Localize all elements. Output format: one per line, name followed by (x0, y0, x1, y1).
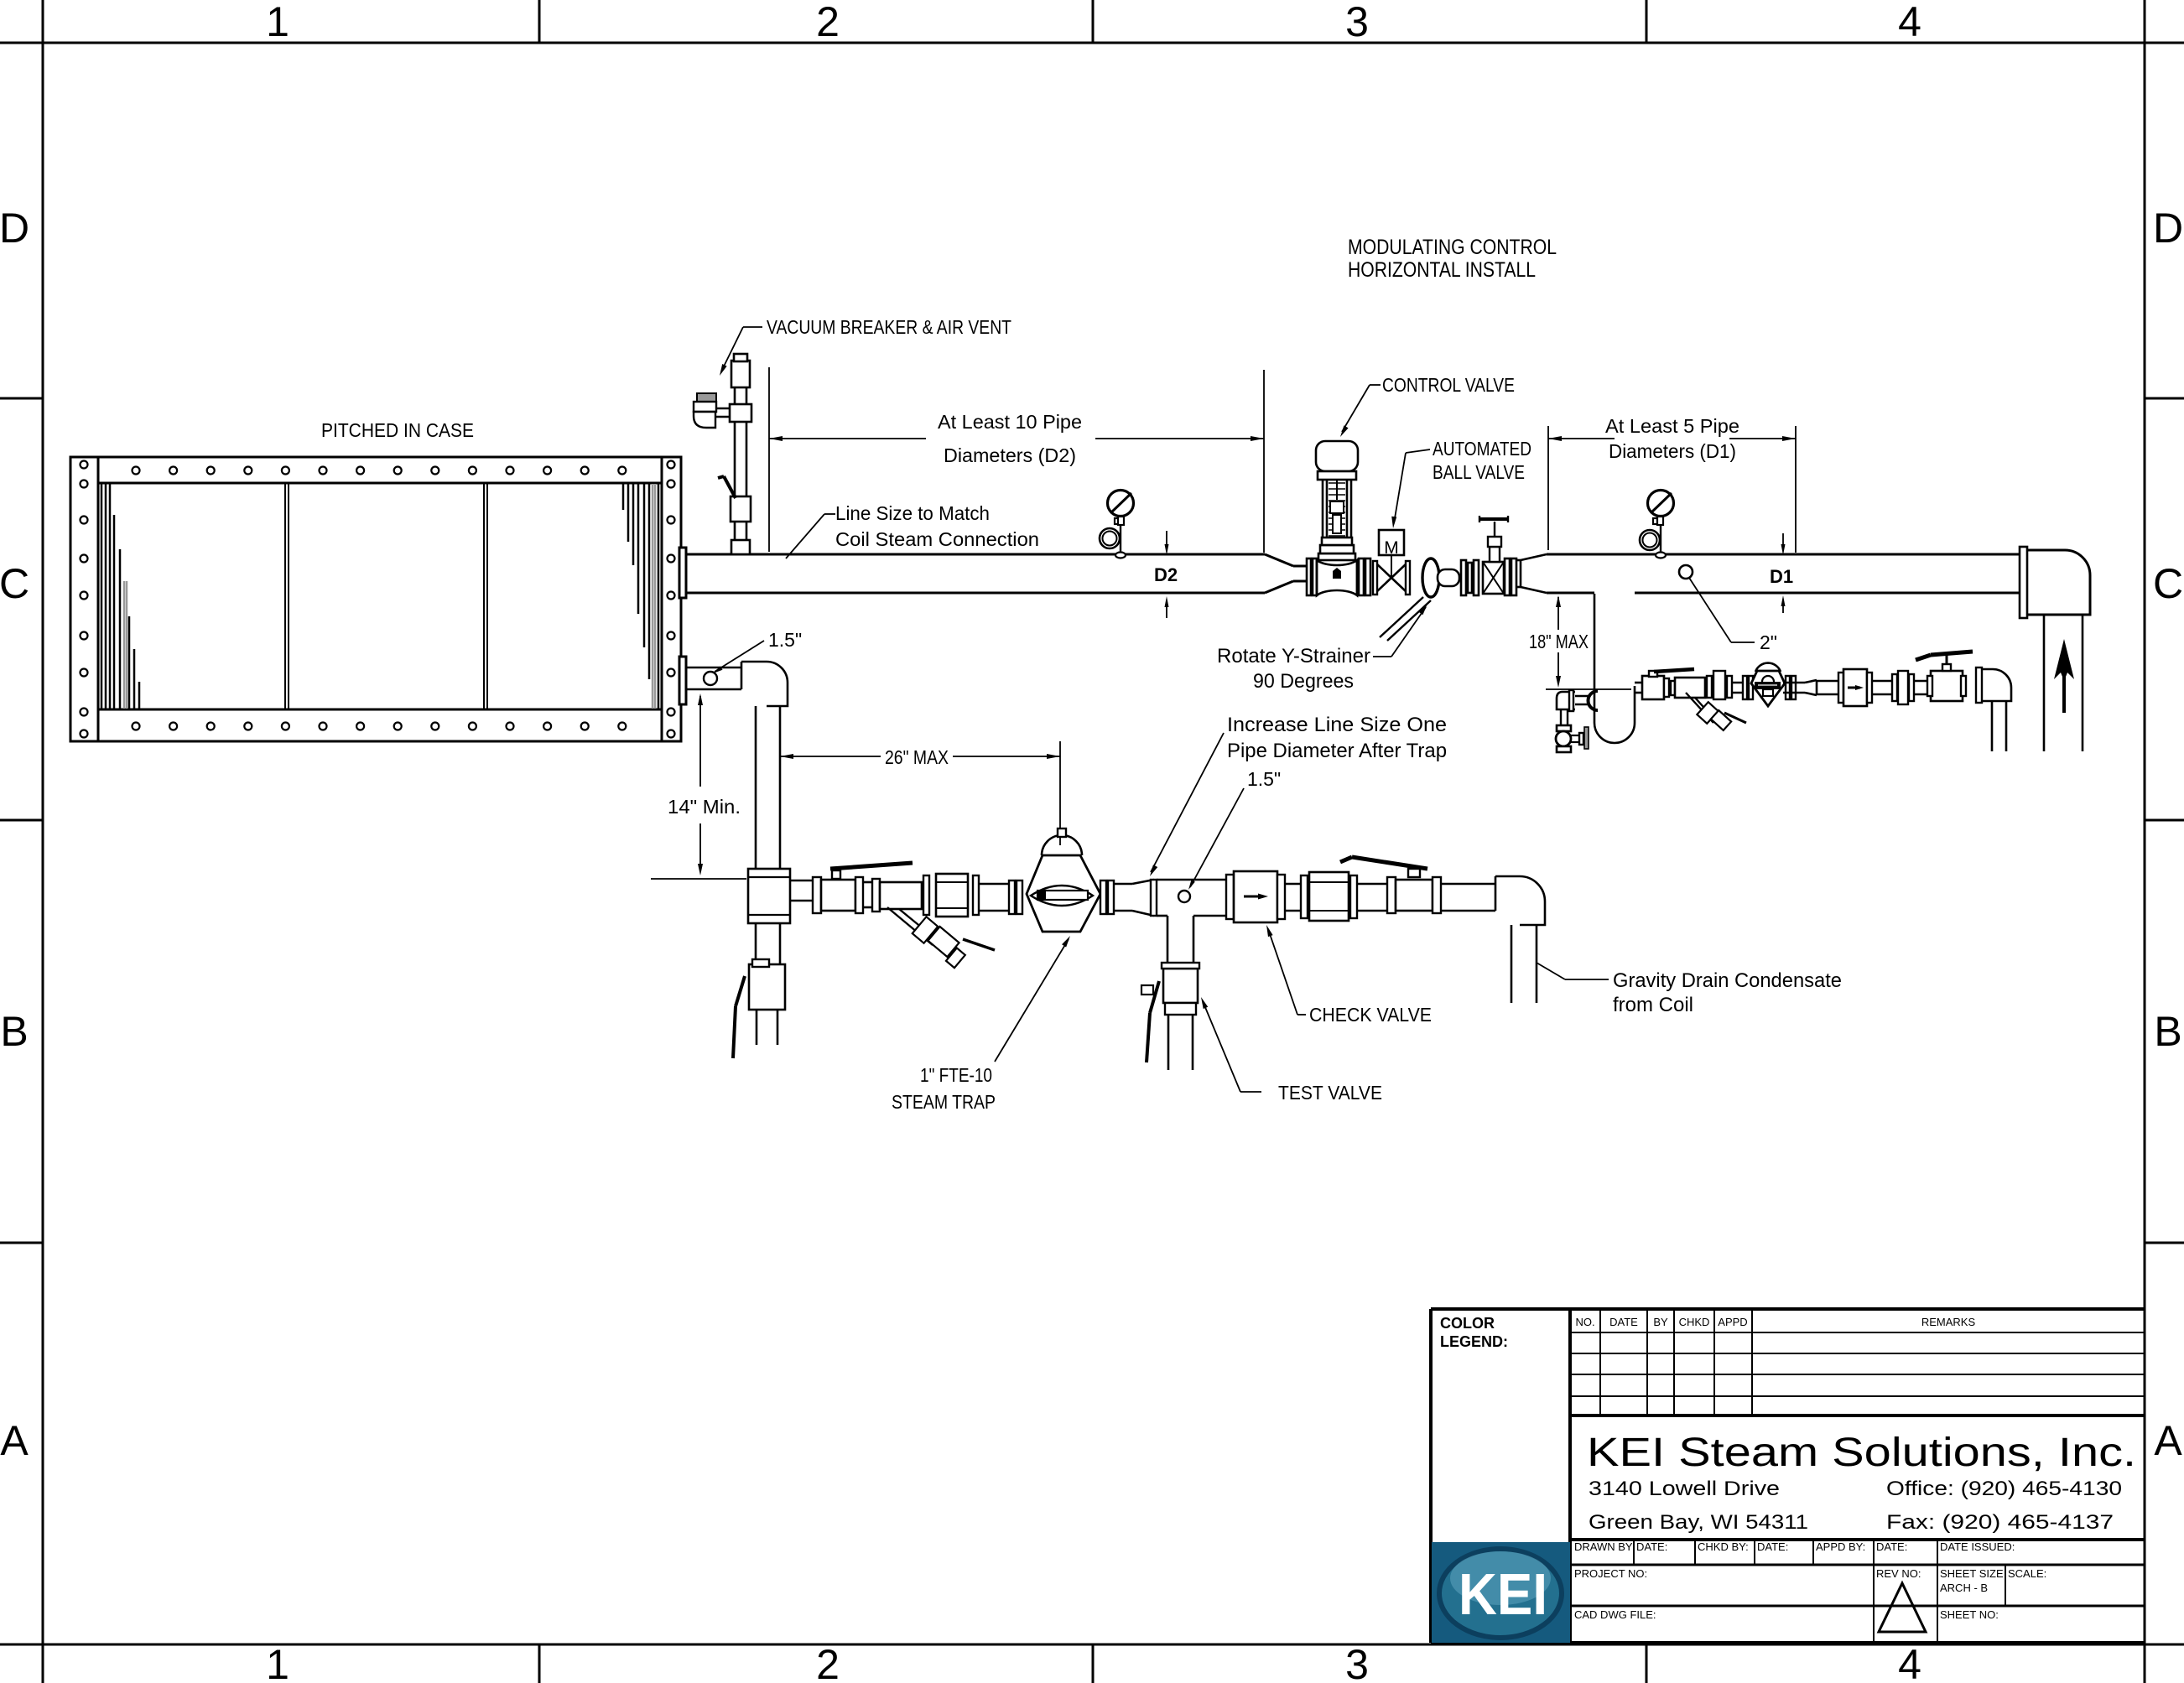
svg-text:18" MAX: 18" MAX (1529, 631, 1589, 652)
svg-text:KEI Steam Solutions, Inc.: KEI Steam Solutions, Inc. (1587, 1431, 2136, 1475)
svg-text:D1: D1 (1770, 566, 1793, 587)
svg-text:Green Bay, WI 54311: Green Bay, WI 54311 (1589, 1511, 1808, 1534)
svg-text:1: 1 (266, 1641, 289, 1683)
svg-text:90 Degrees: 90 Degrees (1253, 670, 1354, 693)
svg-text:PROJECT NO:: PROJECT NO: (1574, 1567, 1647, 1580)
svg-text:Coil Steam Connection: Coil Steam Connection (835, 528, 1039, 550)
svg-text:3: 3 (1345, 1641, 1369, 1683)
svg-text:Line Size to Match: Line Size to Match (835, 502, 990, 524)
svg-text:DATE ISSUED:: DATE ISSUED: (1940, 1540, 2015, 1553)
svg-text:ARCH - B: ARCH - B (1940, 1582, 1988, 1594)
svg-text:2": 2" (1760, 631, 1777, 653)
svg-text:REMARKS: REMARKS (1921, 1316, 1976, 1328)
svg-text:1" FTE-10: 1" FTE-10 (920, 1064, 992, 1086)
svg-text:A: A (0, 1417, 29, 1464)
svg-text:NO.: NO. (1575, 1316, 1594, 1328)
svg-text:DATE:: DATE: (1876, 1540, 1907, 1553)
svg-text:Gravity Drain Condensate: Gravity Drain Condensate (1613, 969, 1842, 992)
svg-text:26" MAX: 26" MAX (885, 746, 949, 768)
svg-text:C: C (2153, 560, 2183, 607)
svg-text:COLOR: COLOR (1440, 1315, 1495, 1332)
svg-text:14" Min.: 14" Min. (668, 796, 741, 818)
svg-text:DATE: DATE (1609, 1316, 1638, 1328)
svg-text:At Least 5 Pipe: At Least 5 Pipe (1605, 415, 1739, 437)
svg-text:APPD BY:: APPD BY: (1816, 1540, 1865, 1553)
svg-text:D2: D2 (1154, 564, 1178, 585)
svg-text:APPD: APPD (1718, 1316, 1747, 1328)
svg-text:D: D (0, 205, 29, 252)
svg-text:M: M (1384, 538, 1399, 558)
svg-text:Diameters (D2): Diameters (D2) (944, 444, 1076, 466)
svg-text:SCALE:: SCALE: (2008, 1567, 2046, 1580)
svg-text:C: C (0, 560, 29, 607)
svg-text:CHKD: CHKD (1679, 1316, 1710, 1328)
svg-text:Pipe Diameter After Trap: Pipe Diameter After Trap (1227, 740, 1447, 762)
svg-text:4: 4 (1898, 0, 1921, 45)
svg-text:B: B (0, 1008, 28, 1055)
svg-text:B: B (2154, 1008, 2181, 1055)
svg-text:REV NO:: REV NO: (1876, 1567, 1921, 1580)
svg-text:3: 3 (1345, 0, 1369, 45)
svg-text:BALL VALVE: BALL VALVE (1433, 461, 1525, 483)
svg-text:CHKD BY:: CHKD BY: (1698, 1540, 1749, 1553)
svg-text:MODULATING CONTROL: MODULATING CONTROL (1348, 236, 1557, 259)
svg-text:2: 2 (816, 1641, 840, 1683)
svg-text:Rotate Y-Strainer: Rotate Y-Strainer (1217, 645, 1370, 667)
svg-text:VACUUM BREAKER & AIR VENT: VACUUM BREAKER & AIR VENT (767, 316, 1011, 338)
svg-text:PITCHED IN CASE: PITCHED IN CASE (321, 419, 474, 441)
svg-text:KEI: KEI (1459, 1561, 1547, 1627)
svg-text:At Least 10 Pipe: At Least 10 Pipe (938, 411, 1082, 433)
svg-text:HORIZONTAL INSTALL: HORIZONTAL INSTALL (1348, 258, 1536, 282)
svg-text:DATE:: DATE: (1757, 1540, 1788, 1553)
svg-text:Increase Line Size One: Increase Line Size One (1227, 714, 1447, 736)
svg-text:DATE:: DATE: (1636, 1540, 1667, 1553)
svg-text:STEAM TRAP: STEAM TRAP (892, 1091, 996, 1113)
svg-text:A: A (2154, 1417, 2182, 1464)
svg-text:3140 Lowell Drive: 3140 Lowell Drive (1589, 1478, 1780, 1500)
svg-text:2: 2 (816, 0, 840, 45)
svg-text:from Coil: from Coil (1613, 994, 1693, 1016)
svg-text:CHECK VALVE: CHECK VALVE (1309, 1004, 1432, 1026)
svg-text:SHEET SIZE: SHEET SIZE (1940, 1567, 2004, 1580)
svg-text:CONTROL VALVE: CONTROL VALVE (1382, 374, 1515, 396)
svg-text:D: D (2153, 205, 2183, 252)
svg-text:Office: (920) 465-4130: Office: (920) 465-4130 (1886, 1478, 2122, 1500)
svg-text:DRAWN BY:: DRAWN BY: (1574, 1540, 1635, 1553)
svg-text:4: 4 (1898, 1641, 1921, 1683)
svg-text:1: 1 (266, 0, 289, 45)
svg-text:CAD DWG FILE:: CAD DWG FILE: (1574, 1608, 1656, 1621)
svg-text:BY: BY (1653, 1316, 1668, 1328)
svg-text:1.5": 1.5" (768, 629, 802, 651)
svg-text:AUTOMATED: AUTOMATED (1433, 438, 1531, 460)
svg-text:Diameters (D1): Diameters (D1) (1609, 440, 1736, 462)
svg-text:1.5": 1.5" (1247, 768, 1281, 790)
svg-text:Fax: (920) 465-4137: Fax: (920) 465-4137 (1886, 1511, 2114, 1534)
svg-text:SHEET NO:: SHEET NO: (1940, 1608, 1999, 1621)
svg-text:LEGEND:: LEGEND: (1440, 1333, 1508, 1350)
svg-text:TEST VALVE: TEST VALVE (1278, 1082, 1382, 1104)
